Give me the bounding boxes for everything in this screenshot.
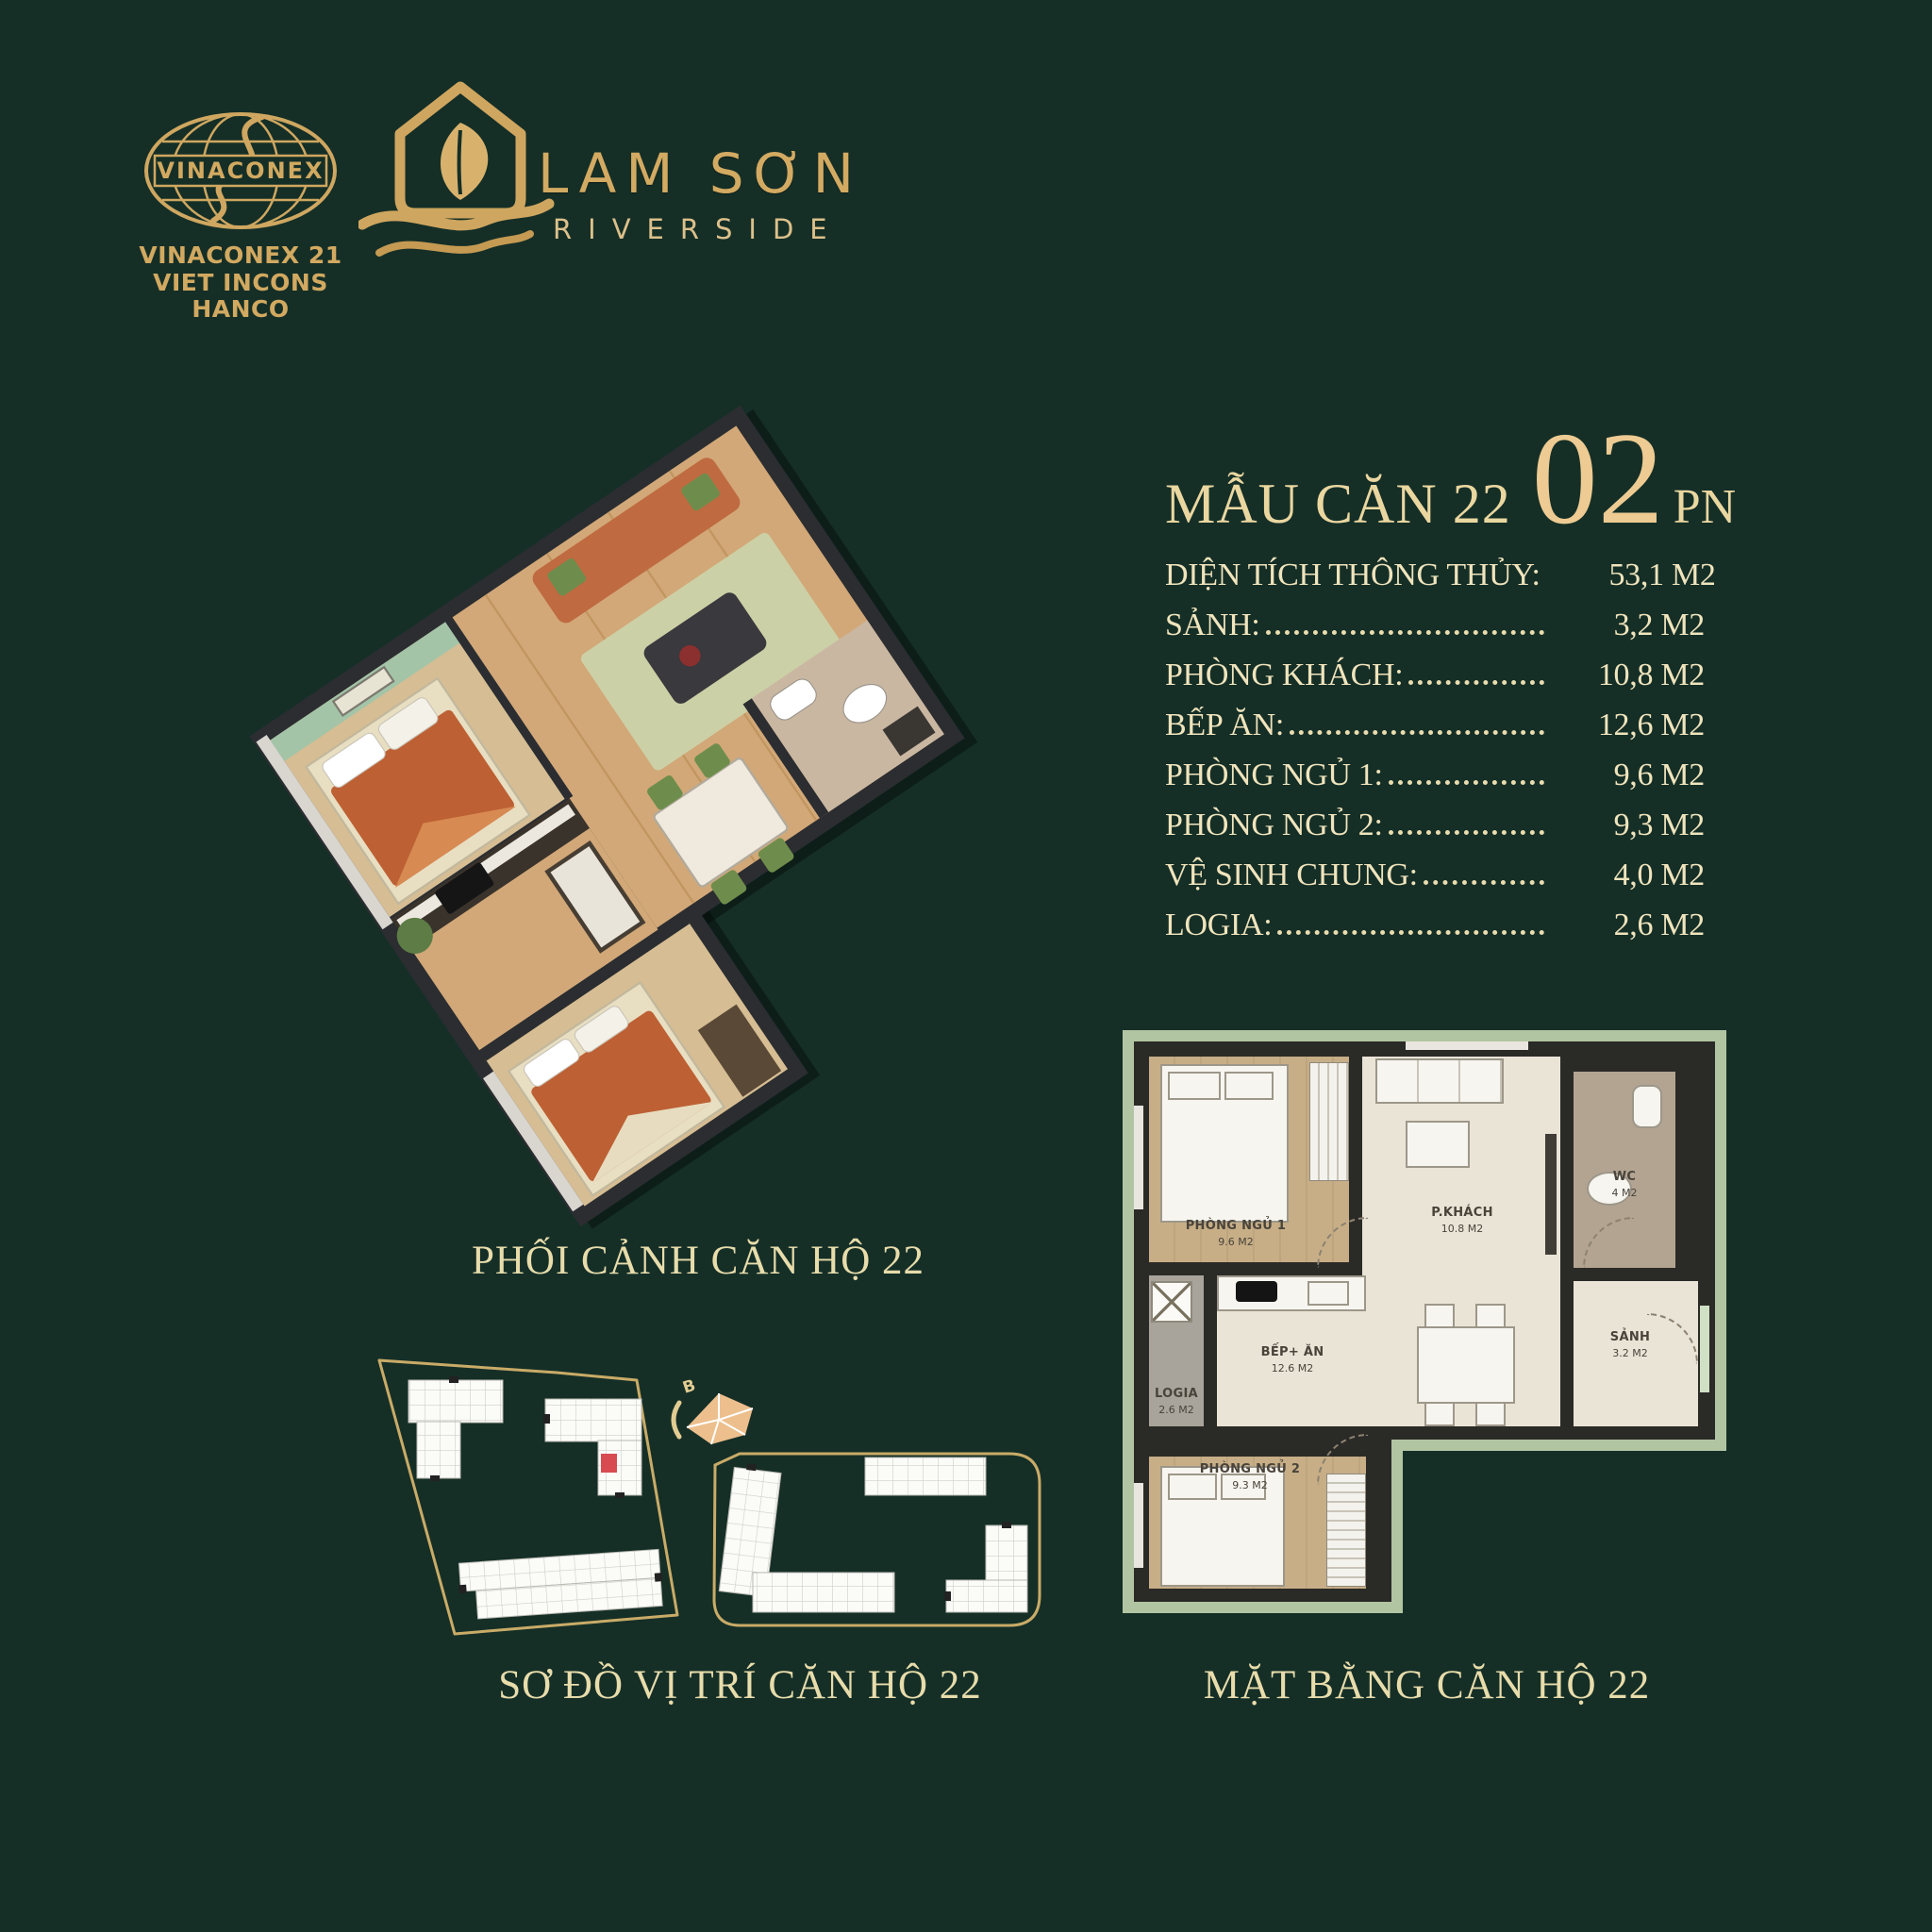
cooktop: [1236, 1281, 1277, 1302]
compass-icon: B: [674, 1376, 753, 1444]
vinaconex-globe-icon: VINACONEX: [142, 111, 340, 230]
spec-value: 3,2 M2: [1554, 608, 1705, 643]
dotted-leader: [1389, 830, 1544, 835]
unit-spec-panel: MẪU CĂN 22 02 PN DIỆN TÍCH THÔNG THỦY: 5…: [1165, 429, 1705, 958]
vinaconex-logo-block: VINACONEX VINACONEX 21 VIET INCONS HANCO: [132, 111, 349, 324]
building-right-3: [944, 1522, 1027, 1612]
spec-label: PHÒNG NGỦ 2:: [1165, 808, 1383, 843]
spec-row: VỆ SINH CHUNG: 4,0 M2: [1165, 858, 1705, 908]
floor-plan: PHÒNG NGỦ 1 9.6 M2 P.KHÁCH 10.8 M2 WC 4 …: [1123, 1030, 1731, 1615]
unit-title: MẪU CĂN 22: [1165, 472, 1511, 537]
spec-label: BẾP ĂN:: [1165, 708, 1284, 743]
spec-row: PHÒNG NGỦ 1: 9,6 M2: [1165, 758, 1705, 808]
toilet: [1632, 1085, 1662, 1128]
washing-machine: [1151, 1281, 1192, 1323]
project-name: LAM SƠN: [538, 142, 863, 206]
company-line-2: VIET INCONS: [132, 270, 349, 297]
spec-value: 10,8 M2: [1554, 658, 1705, 693]
lamson-emblem-icon: [358, 75, 557, 278]
bed1-pillow: [1168, 1072, 1221, 1100]
vinaconex-logo-text: VINACONEX: [157, 158, 324, 184]
spec-value: 9,6 M2: [1554, 758, 1705, 793]
spec-label: SẢNH:: [1165, 608, 1260, 643]
spec-label: VỆ SINH CHUNG:: [1165, 858, 1418, 893]
spec-value: 9,3 M2: [1554, 808, 1705, 843]
dotted-leader: [1277, 930, 1544, 935]
label-bedroom2: PHÒNG NGỦ 2 9.3 M2: [1189, 1462, 1311, 1491]
spec-row: PHÒNG NGỦ 2: 9,3 M2: [1165, 808, 1705, 858]
compass-north-label: B: [680, 1376, 698, 1398]
spec-label: LOGIA:: [1165, 908, 1272, 943]
dotted-leader: [1408, 680, 1544, 685]
window: [1134, 1106, 1143, 1209]
label-kitchen: BẾP+ ĂN 12.6 M2: [1241, 1345, 1344, 1374]
spec-value: 12,6 M2: [1554, 708, 1705, 743]
apartment-3d-render: [236, 391, 1085, 1241]
caption-floor-plan: MẶT BẰNG CĂN HỘ 22: [1123, 1662, 1731, 1708]
dotted-leader: [1266, 630, 1544, 635]
brochure-page: VINACONEX VINACONEX 21 VIET INCONS HANCO…: [0, 0, 1932, 1932]
label-logia: LOGIA 2.6 M2: [1139, 1387, 1214, 1416]
window: [1134, 1483, 1143, 1568]
caption-perspective: PHỐI CẢNH CĂN HỘ 22: [368, 1238, 1028, 1284]
spec-row: DIỆN TÍCH THÔNG THỦY: 53,1 M2: [1165, 558, 1705, 608]
spec-row: PHÒNG KHÁCH: 10,8 M2: [1165, 658, 1705, 708]
company-line-1: VINACONEX 21: [132, 242, 349, 270]
unit-title-row: MẪU CĂN 22 02 PN: [1165, 429, 1705, 537]
entry-door: [1700, 1306, 1709, 1392]
wardrobe1: [1309, 1062, 1349, 1181]
window: [1406, 1041, 1528, 1050]
label-hall: SẢNH 3.2 M2: [1583, 1330, 1677, 1359]
highlighted-unit: [601, 1454, 617, 1473]
bedroom-unit: PN: [1674, 479, 1736, 535]
spec-value: 53,1 M2: [1565, 558, 1716, 593]
tv-cabinet: [1545, 1134, 1557, 1255]
caption-site-map: SƠ ĐỒ VỊ TRÍ CĂN HỘ 22: [341, 1662, 1139, 1708]
label-bedroom1: PHÒNG NGỦ 1 9.6 M2: [1174, 1219, 1297, 1248]
spec-row: LOGIA: 2,6 M2: [1165, 908, 1705, 958]
dining-table: [1417, 1326, 1515, 1404]
spec-row: BẾP ĂN: 12,6 M2: [1165, 708, 1705, 758]
chair: [1424, 1402, 1455, 1426]
project-subtitle: RIVERSIDE: [553, 213, 843, 245]
chair: [1424, 1304, 1455, 1328]
spec-label: PHÒNG KHÁCH:: [1165, 658, 1403, 693]
building-left-1: [408, 1376, 503, 1481]
building-left-3: [458, 1549, 665, 1620]
label-wc: WC 4 M2: [1577, 1170, 1672, 1199]
label-living: P.KHÁCH 10.8 M2: [1401, 1206, 1524, 1235]
spec-value: 2,6 M2: [1554, 908, 1705, 943]
building-right-2: [865, 1457, 986, 1495]
chair: [1475, 1402, 1506, 1426]
spec-label: PHÒNG NGỦ 1:: [1165, 758, 1383, 793]
spec-row: SẢNH: 3,2 M2: [1165, 608, 1705, 658]
spec-table: DIỆN TÍCH THÔNG THỦY: 53,1 M2 SẢNH: 3,2 …: [1165, 558, 1705, 958]
building-right-1-bar: [753, 1573, 894, 1612]
building-left-2: [543, 1399, 641, 1498]
spec-value: 4,0 M2: [1554, 858, 1705, 893]
bedroom-count: 02: [1532, 429, 1664, 528]
spec-label: DIỆN TÍCH THÔNG THỦY:: [1165, 558, 1541, 593]
wardrobe2: [1326, 1474, 1366, 1587]
chair: [1475, 1304, 1506, 1328]
dotted-leader: [1389, 780, 1544, 785]
sofa: [1375, 1058, 1504, 1104]
coffee-table: [1406, 1121, 1470, 1168]
dotted-leader: [1424, 880, 1544, 885]
kitchen-sink: [1307, 1281, 1349, 1306]
site-location-map: B: [274, 1344, 1071, 1660]
dotted-leader: [1290, 730, 1544, 735]
bed1-pillow: [1224, 1072, 1274, 1100]
company-line-3: HANCO: [132, 296, 349, 324]
